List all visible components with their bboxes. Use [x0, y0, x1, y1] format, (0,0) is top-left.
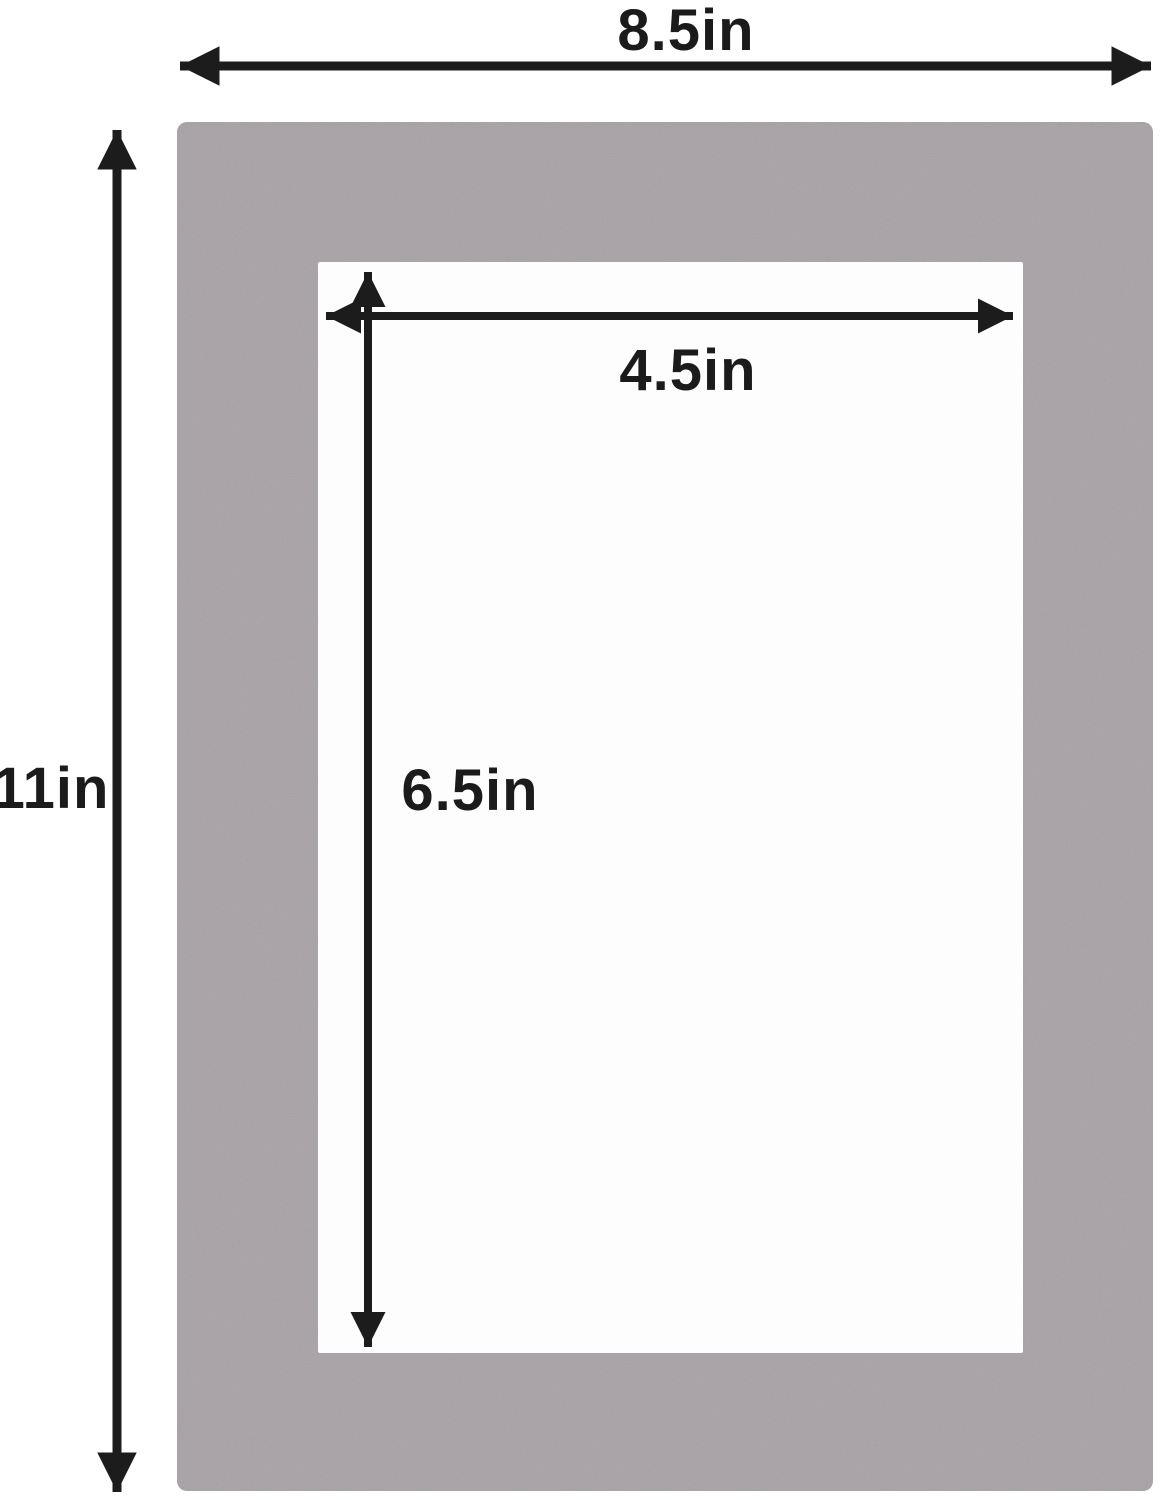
opening-width-label: 4.5in	[619, 342, 756, 400]
opening-height-label: 6.5in	[401, 762, 538, 820]
mat-board	[177, 122, 1153, 1491]
mat-dimension-diagram: 8.5in 11in 4.5in 6.5in	[0, 0, 1167, 1500]
outer-height-label: 11in	[0, 760, 109, 818]
outer-width-label: 8.5in	[617, 2, 754, 60]
